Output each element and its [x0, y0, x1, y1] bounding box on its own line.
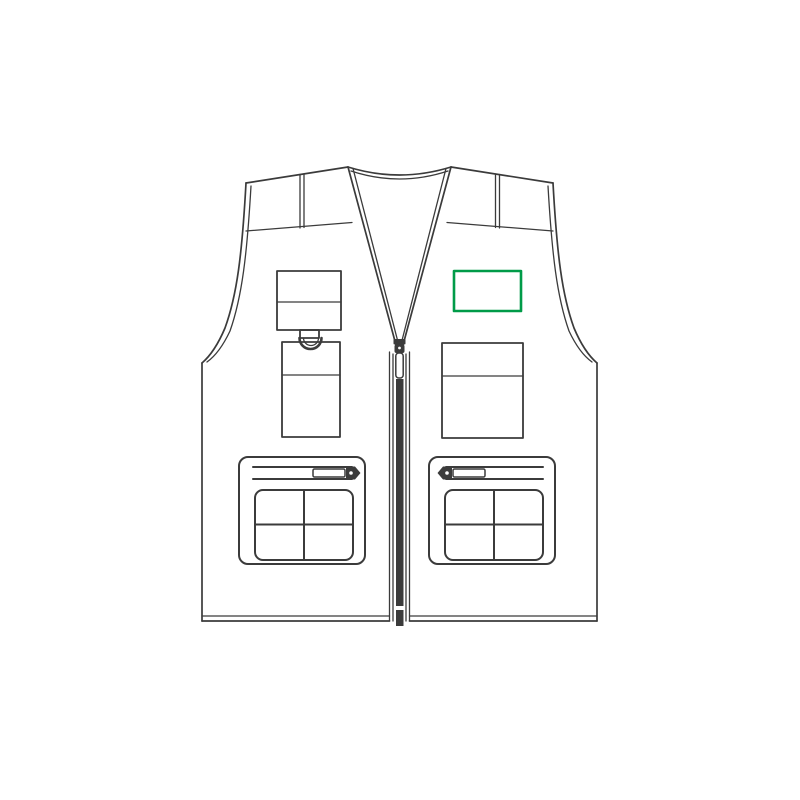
right-cargo-zip-slider-icon — [438, 467, 453, 480]
left-cargo-zip-slider-icon — [346, 467, 361, 480]
print-area-marker[interactable] — [454, 271, 521, 311]
zipper-bottom-stop — [396, 610, 404, 626]
right-chest-pocket-body — [442, 343, 523, 438]
left-chest-flap-pocket — [277, 271, 341, 349]
lapel-bindings — [348, 167, 451, 349]
right-cargo-zip-slider-hole — [445, 471, 449, 475]
vest-line-art — [0, 0, 800, 800]
vest-drawing — [202, 167, 597, 626]
left-cargo-zip-pull — [313, 469, 345, 477]
collar-binding — [348, 167, 451, 179]
zipper-pull-tab — [396, 353, 403, 378]
left-cargo-zip-slider-hole — [349, 471, 353, 475]
main-zipper — [390, 339, 410, 626]
right-cargo-pocket — [429, 457, 555, 564]
left-chest-pocket-body — [282, 342, 340, 437]
zipper-slider-hole — [398, 347, 401, 350]
right-cargo-zip-pull — [453, 469, 485, 477]
flap-pocket-body — [277, 271, 341, 330]
product-preview-canvas — [0, 0, 800, 800]
shoulder-seams — [300, 174, 500, 228]
yoke-seams — [246, 223, 553, 232]
zipper-bridge — [394, 339, 406, 345]
left-chest-pocket — [282, 342, 340, 437]
left-cargo-pocket — [239, 457, 365, 564]
d-ring-tab — [300, 330, 319, 338]
right-chest-pocket — [442, 343, 523, 438]
zipper-tape — [396, 379, 404, 606]
